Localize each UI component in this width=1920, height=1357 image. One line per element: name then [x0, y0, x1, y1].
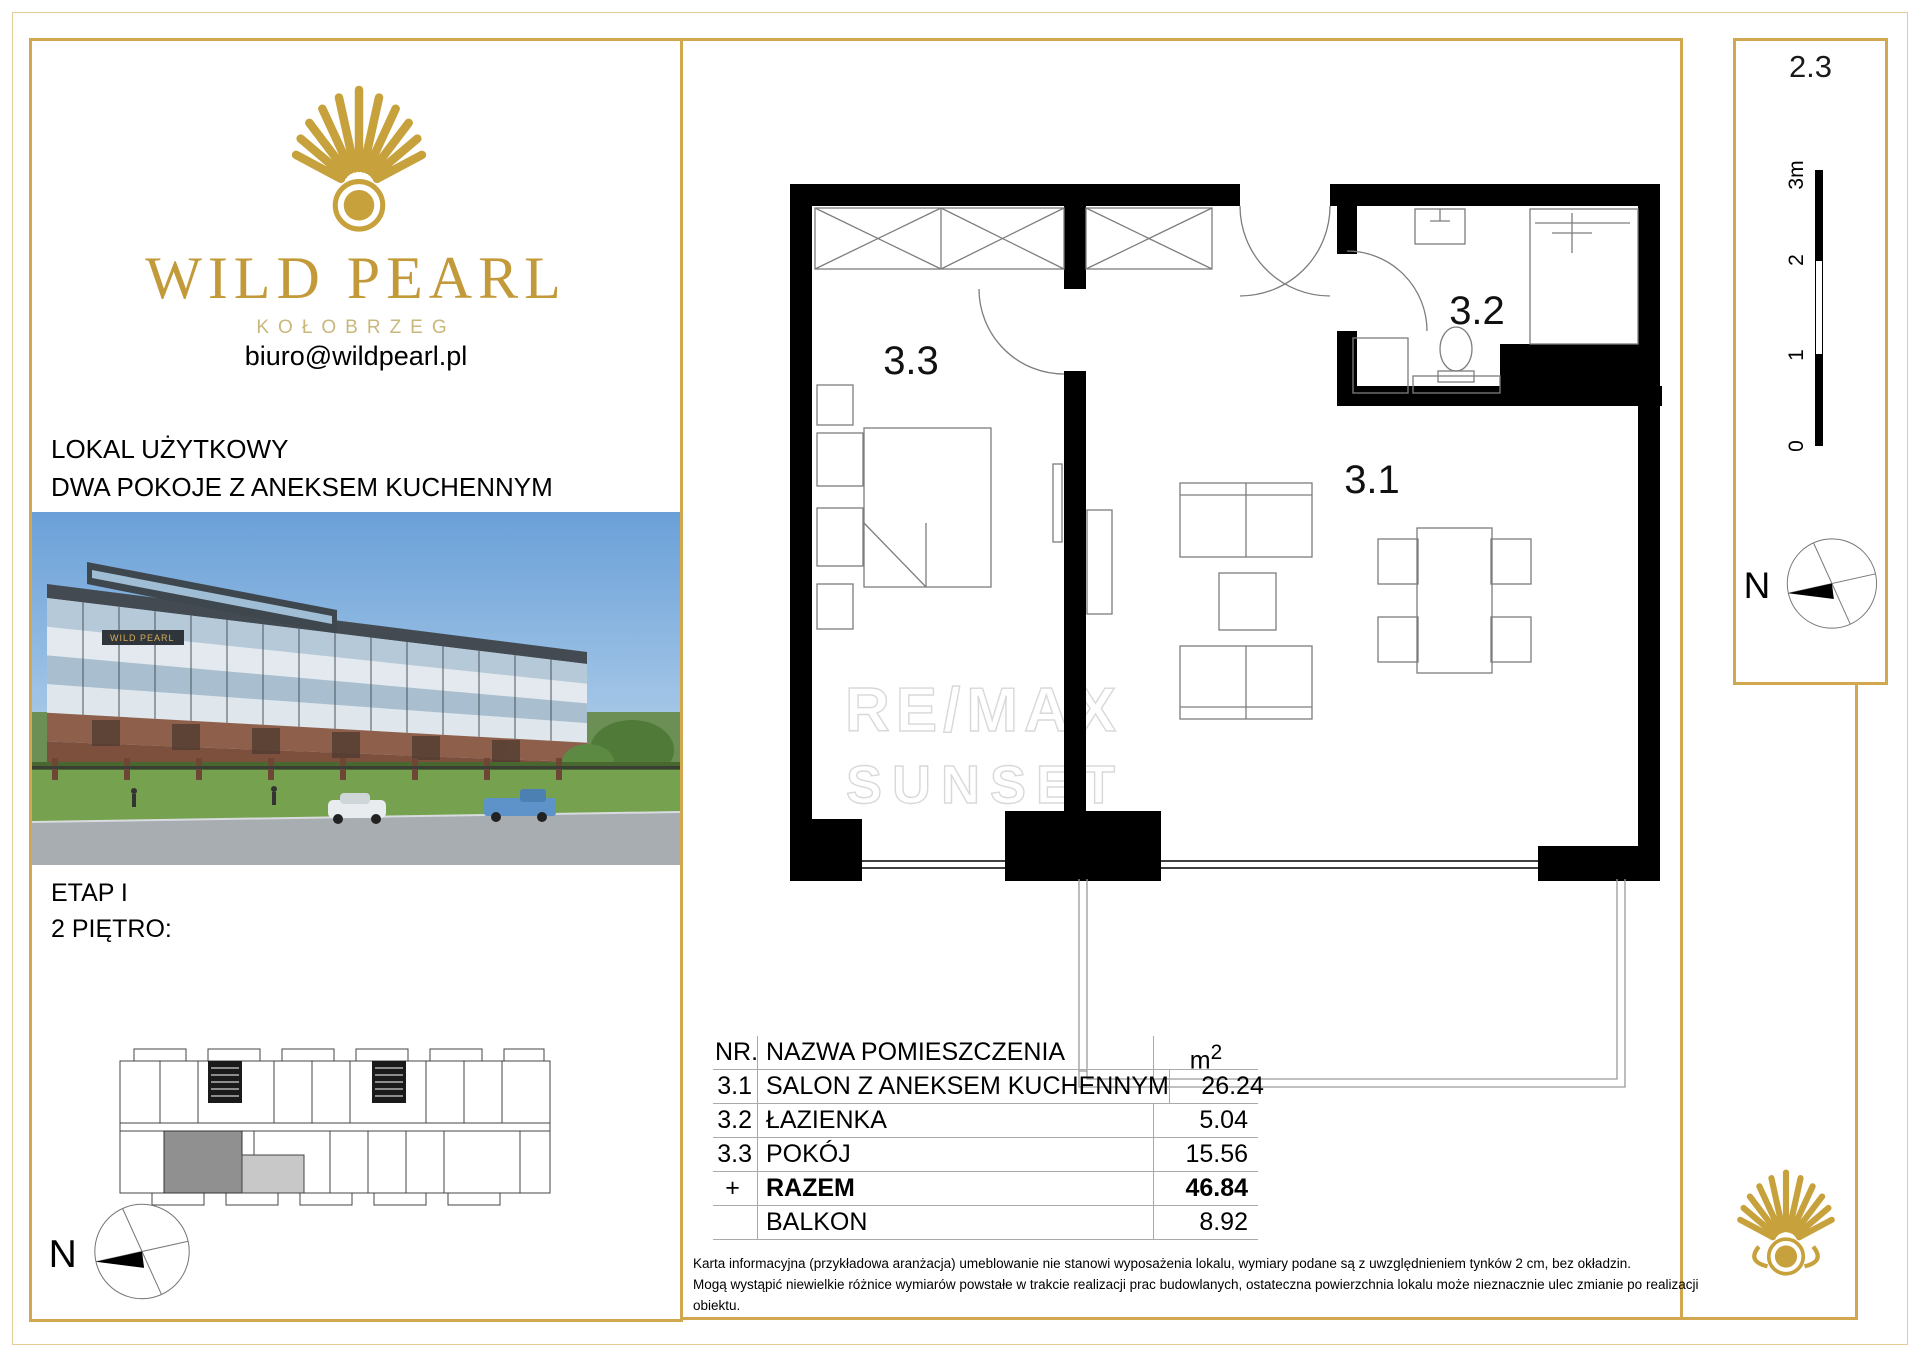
highlighted-unit — [164, 1131, 242, 1193]
row-area-value: 5.04 — [1153, 1104, 1258, 1137]
floor-plan-panel: RE/MAX SUNSET — [683, 38, 1683, 1320]
side-strip: 2.3 3m 2 1 0 N — [1733, 38, 1888, 685]
row-nr: 3.2 — [713, 1104, 757, 1137]
stage-label: ETAP I — [51, 879, 128, 908]
scale-bar-segment — [1815, 260, 1823, 355]
row-nr: + — [713, 1172, 757, 1205]
windows — [862, 861, 1538, 868]
scale-label-3m: 3m — [1785, 157, 1807, 193]
compass-icon: N — [34, 1193, 209, 1311]
apartment-floor-plan: RE/MAX SUNSET — [780, 171, 1700, 1101]
area-table-row: 3.3POKÓJ15.56 — [713, 1138, 1258, 1172]
offer-type-line1: LOKAL UŻYTKOWY — [51, 434, 288, 465]
area-table-row: +RAZEM46.84 — [713, 1172, 1258, 1206]
furniture — [815, 206, 1638, 719]
row-area-value: 15.56 — [1153, 1138, 1258, 1171]
floor-overview-plan — [112, 1035, 557, 1217]
row-room-name: BALKON — [757, 1206, 1153, 1239]
unit-number: 2.3 — [1736, 49, 1885, 85]
brand-city: KOŁOBRZEG — [32, 317, 680, 339]
scale-label-2: 2 — [1785, 242, 1807, 278]
highlighted-unit-secondary — [242, 1155, 304, 1193]
stair-core — [372, 1061, 406, 1103]
compass-north-label: N — [49, 1233, 77, 1276]
area-table-header: NR. NAZWA POMIESZCZENIA m2 — [713, 1036, 1258, 1070]
row-room-name: RAZEM — [757, 1172, 1153, 1205]
flyer-page: WILD PEARL KOŁOBRZEG biuro@wildpearl.pl … — [0, 0, 1920, 1357]
room-label-33: 3.3 — [883, 339, 939, 383]
disclaimer-line1: Karta informacyjna (przykładowa aranżacj… — [693, 1253, 1703, 1274]
scale-bar-segment — [1815, 170, 1823, 260]
row-area-value: 46.84 — [1153, 1172, 1258, 1205]
scale-bar-segment — [1815, 355, 1823, 446]
row-nr: 3.1 — [713, 1070, 757, 1103]
row-room-name: SALON Z ANEKSEM KUCHENNYM — [757, 1070, 1169, 1103]
room-label-32: 3.2 — [1449, 289, 1505, 333]
scale-label-0: 0 — [1785, 428, 1807, 464]
shell-ornament-icon — [1712, 1136, 1860, 1298]
brand-name: WILD PEARL — [32, 244, 680, 313]
offer-type-line2: DWA POKOJE Z ANEKSEM KUCHENNYM — [51, 472, 553, 503]
left-info-panel: WILD PEARL KOŁOBRZEG biuro@wildpearl.pl … — [29, 38, 683, 1322]
building-render-image: WILD PEARL — [32, 512, 680, 865]
contact-email: biuro@wildpearl.pl — [32, 341, 680, 372]
row-area-value: 8.92 — [1153, 1206, 1258, 1239]
row-nr: 3.3 — [713, 1138, 757, 1171]
floor-label: 2 PIĘTRO: — [51, 915, 172, 944]
svg-text:WILD PEARL: WILD PEARL — [110, 633, 175, 643]
stair-core — [208, 1061, 242, 1103]
row-room-name: ŁAZIENKA — [757, 1104, 1153, 1137]
row-room-name: POKÓJ — [757, 1138, 1153, 1171]
compass-icon: N — [1730, 528, 1895, 640]
scale-label-1: 1 — [1785, 337, 1807, 373]
compass-north-label: N — [1744, 565, 1771, 606]
disclaimer-text: Karta informacyjna (przykładowa aranżacj… — [693, 1253, 1703, 1316]
area-table-row: 3.1SALON Z ANEKSEM KUCHENNYM26.24 — [713, 1070, 1258, 1104]
area-table-row: 3.2ŁAZIENKA5.04 — [713, 1104, 1258, 1138]
wild-pearl-shell-logo-icon — [234, 56, 484, 246]
room-label-31: 3.1 — [1344, 458, 1400, 502]
area-table-row: BALKON8.92 — [713, 1206, 1258, 1240]
row-area-value: 26.24 — [1169, 1070, 1274, 1103]
row-nr — [713, 1206, 757, 1239]
area-table: NR. NAZWA POMIESZCZENIA m2 3.1SALON Z AN… — [713, 1036, 1258, 1240]
disclaimer-line2: Mogą wystąpić niewielkie różnice wymiaró… — [693, 1274, 1703, 1316]
